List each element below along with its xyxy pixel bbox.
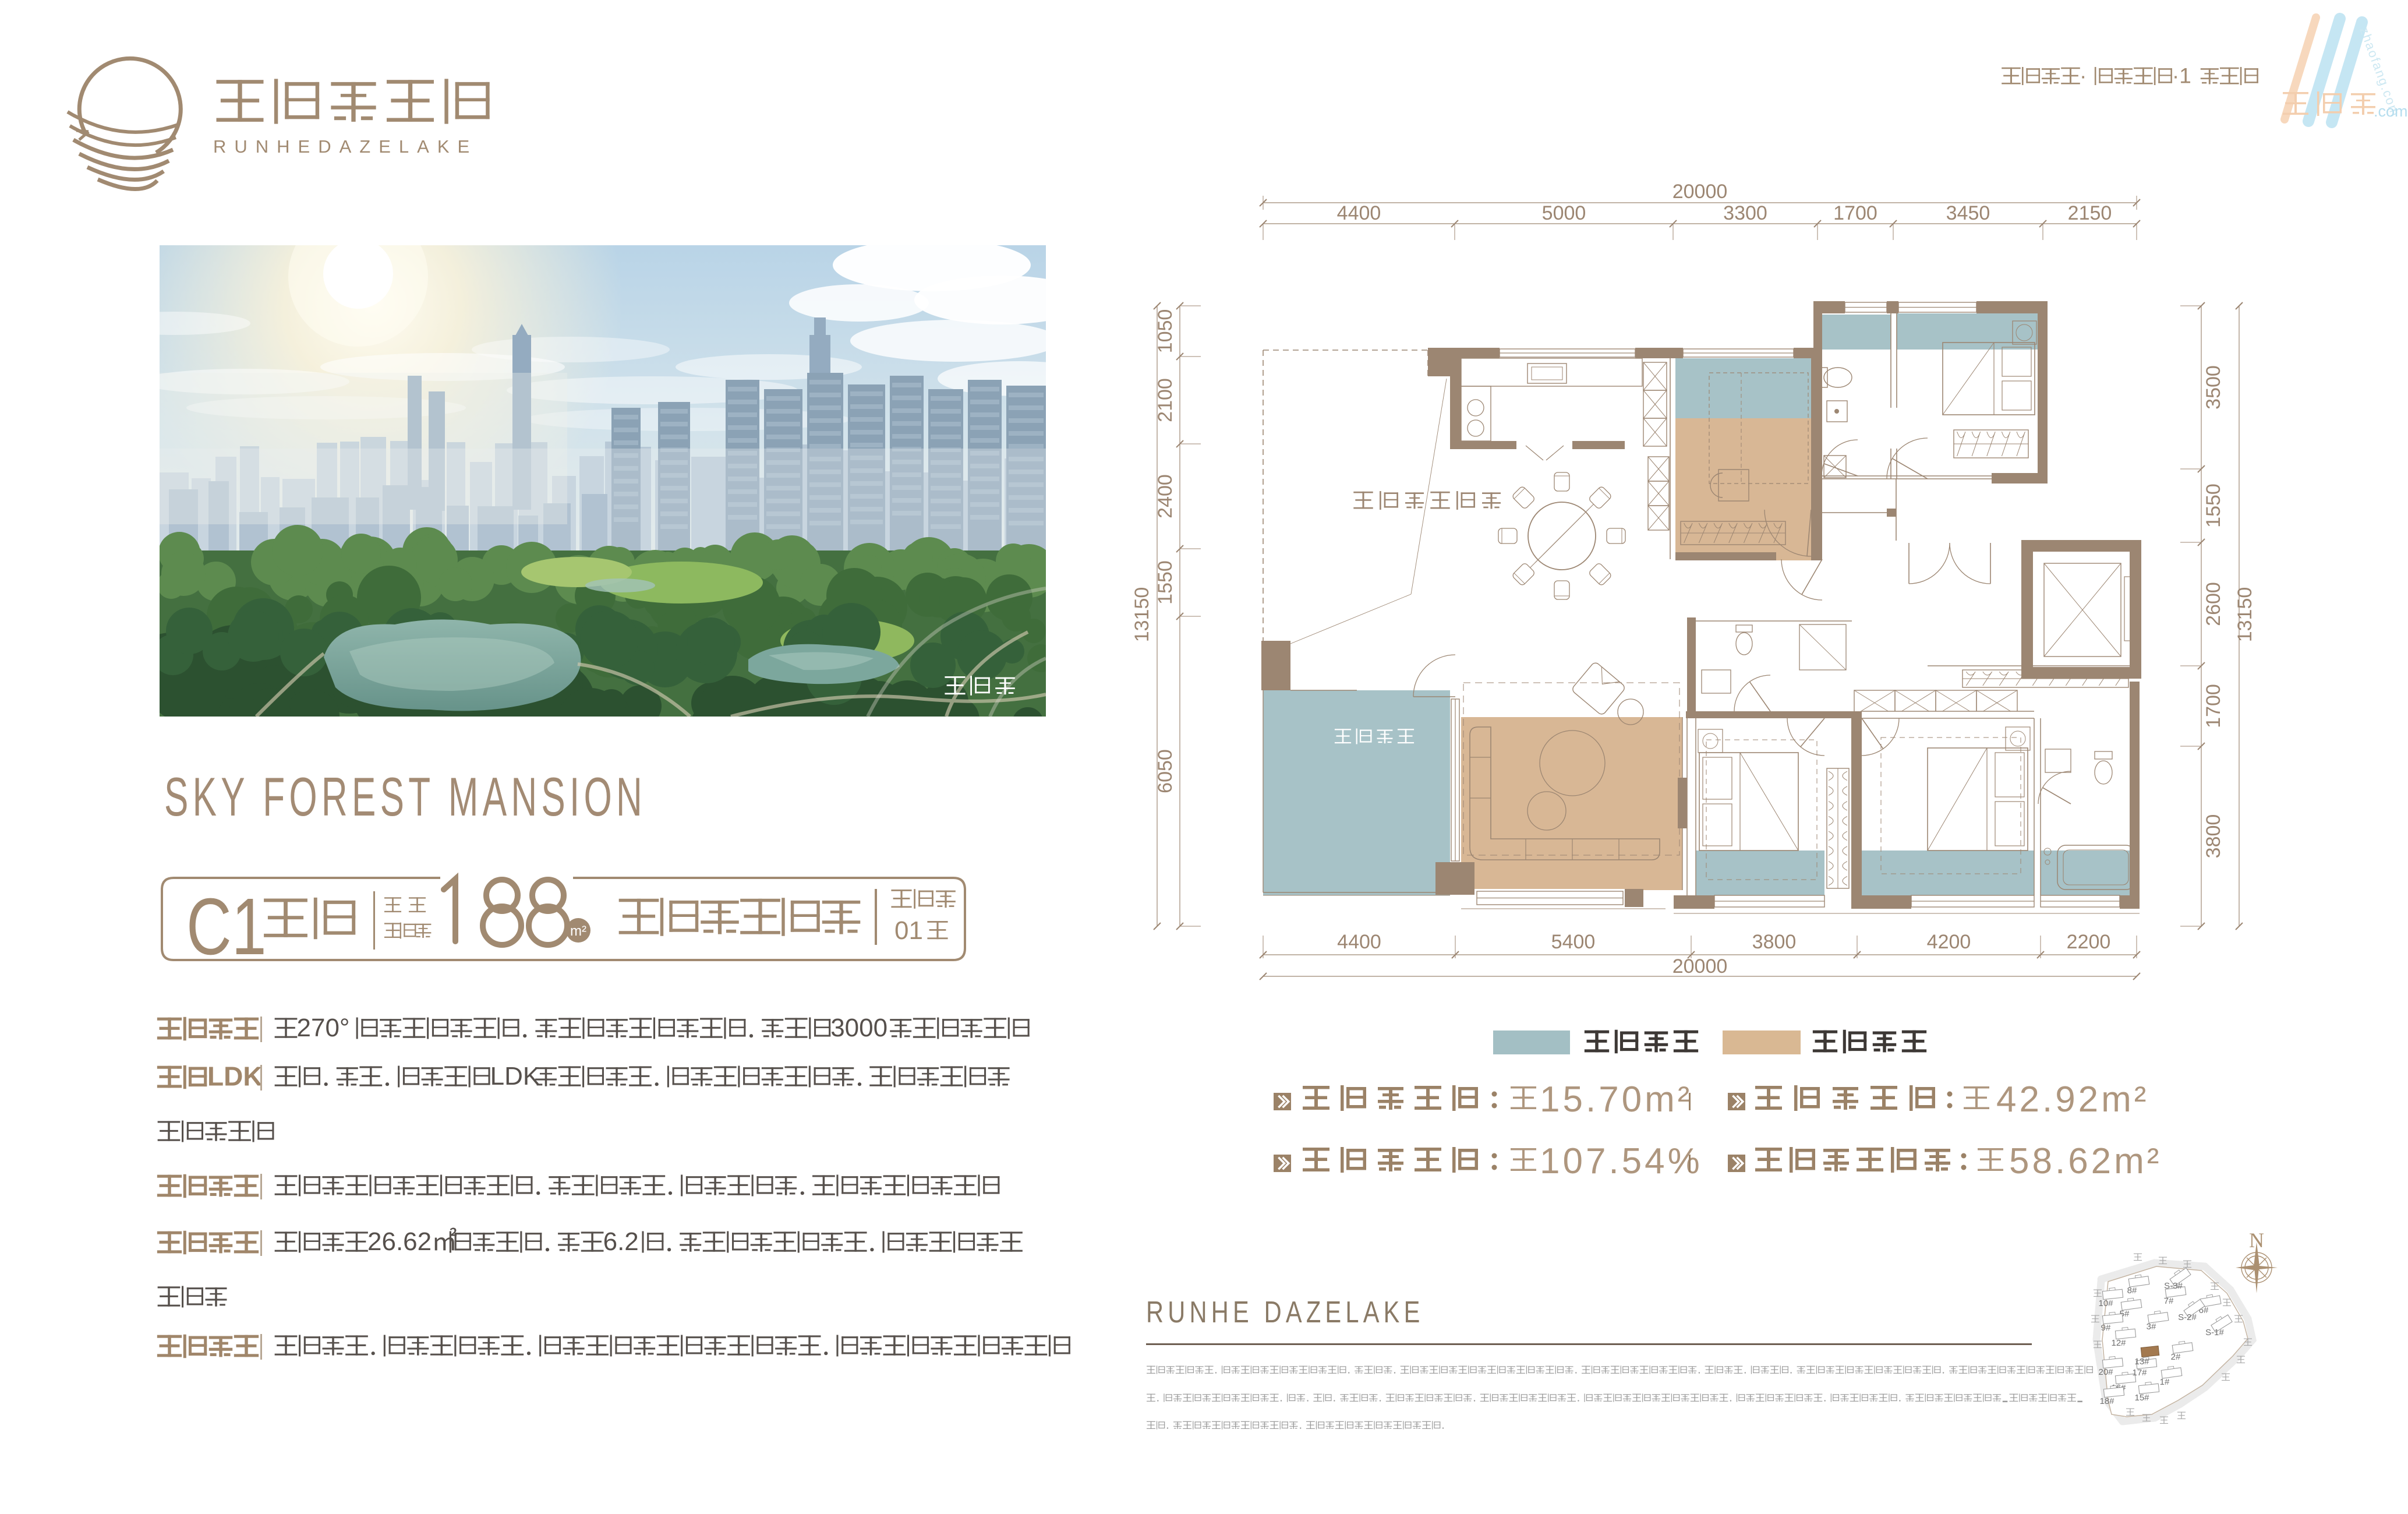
svg-text:42.92m²: 42.92m² bbox=[1996, 1079, 2149, 1120]
svg-text:LDK: LDK bbox=[490, 1062, 540, 1090]
svg-text:4400: 4400 bbox=[1337, 202, 1381, 224]
svg-text:LDK: LDK bbox=[207, 1061, 263, 1092]
svg-text:.com: .com bbox=[2374, 103, 2408, 120]
svg-text:C1: C1 bbox=[186, 882, 267, 972]
svg-text:6.2: 6.2 bbox=[603, 1227, 639, 1256]
svg-text:2100: 2100 bbox=[1154, 378, 1176, 422]
svg-text:18#: 18# bbox=[2099, 1396, 2114, 1406]
svg-text:3800: 3800 bbox=[1752, 931, 1797, 953]
svg-text:1550: 1550 bbox=[2202, 484, 2225, 528]
svg-text:20#: 20# bbox=[2098, 1367, 2113, 1377]
svg-text:·: · bbox=[2080, 63, 2087, 87]
svg-text:3500: 3500 bbox=[2202, 365, 2225, 410]
svg-text:13150: 13150 bbox=[2234, 587, 2256, 643]
svg-text:01: 01 bbox=[894, 916, 923, 945]
svg-text:1550: 1550 bbox=[1154, 560, 1176, 605]
svg-text:10#: 10# bbox=[2098, 1298, 2113, 1308]
svg-text:4200: 4200 bbox=[1927, 931, 1971, 953]
svg-text:13#: 13# bbox=[2134, 1357, 2149, 1367]
svg-text:S-2#: S-2# bbox=[2178, 1312, 2197, 1322]
svg-text:1700: 1700 bbox=[2202, 684, 2225, 728]
svg-text:58.62m²: 58.62m² bbox=[2009, 1141, 2162, 1181]
svg-text:·1: ·1 bbox=[2172, 63, 2191, 87]
svg-text:RUNHEDAZELAKE: RUNHEDAZELAKE bbox=[213, 136, 478, 157]
svg-text:2200: 2200 bbox=[2067, 931, 2111, 953]
svg-text:20000: 20000 bbox=[1672, 955, 1728, 977]
svg-text:1700: 1700 bbox=[1833, 202, 1877, 224]
svg-text:2600: 2600 bbox=[2202, 582, 2225, 626]
svg-text:5400: 5400 bbox=[1551, 931, 1596, 953]
svg-text:SKY FOREST MANSION: SKY FOREST MANSION bbox=[164, 766, 646, 827]
svg-text:8#: 8# bbox=[2127, 1286, 2137, 1296]
svg-text:S-3#: S-3# bbox=[2164, 1281, 2183, 1291]
svg-text:12#: 12# bbox=[2111, 1338, 2126, 1348]
svg-text:3#: 3# bbox=[2147, 1322, 2156, 1332]
svg-text:5000: 5000 bbox=[1542, 202, 1586, 224]
svg-text:20000: 20000 bbox=[1672, 181, 1728, 203]
svg-text:2150: 2150 bbox=[2068, 202, 2112, 224]
svg-text:1#: 1# bbox=[2160, 1377, 2170, 1387]
svg-text:6050: 6050 bbox=[1154, 749, 1176, 793]
svg-text:N: N bbox=[2249, 1229, 2264, 1252]
svg-text:2#: 2# bbox=[2171, 1352, 2181, 1362]
svg-text:9#: 9# bbox=[2101, 1323, 2111, 1333]
svg-text:2400: 2400 bbox=[1154, 474, 1176, 518]
svg-text:m²: m² bbox=[570, 923, 586, 939]
svg-text:1050: 1050 bbox=[1154, 309, 1176, 354]
svg-text:26.62㎡: 26.62㎡ bbox=[367, 1227, 457, 1256]
svg-text:13150: 13150 bbox=[1131, 587, 1153, 643]
svg-text:270°: 270° bbox=[297, 1014, 350, 1042]
svg-text:17#: 17# bbox=[2132, 1368, 2147, 1378]
svg-text:15#: 15# bbox=[2134, 1393, 2149, 1403]
svg-text:107.54%: 107.54% bbox=[1540, 1141, 1703, 1181]
svg-text:S-1#: S-1# bbox=[2205, 1328, 2224, 1337]
svg-text:3300: 3300 bbox=[1723, 202, 1767, 224]
svg-text:3450: 3450 bbox=[1946, 202, 1990, 224]
svg-text:3000: 3000 bbox=[830, 1014, 887, 1042]
svg-text:4400: 4400 bbox=[1337, 931, 1381, 953]
svg-text:3800: 3800 bbox=[2202, 814, 2225, 859]
svg-text:7#: 7# bbox=[2164, 1296, 2174, 1306]
svg-text:15.70m²: 15.70m² bbox=[1540, 1079, 1692, 1120]
svg-text:RUNHE DAZELAKE: RUNHE DAZELAKE bbox=[1146, 1295, 1424, 1329]
